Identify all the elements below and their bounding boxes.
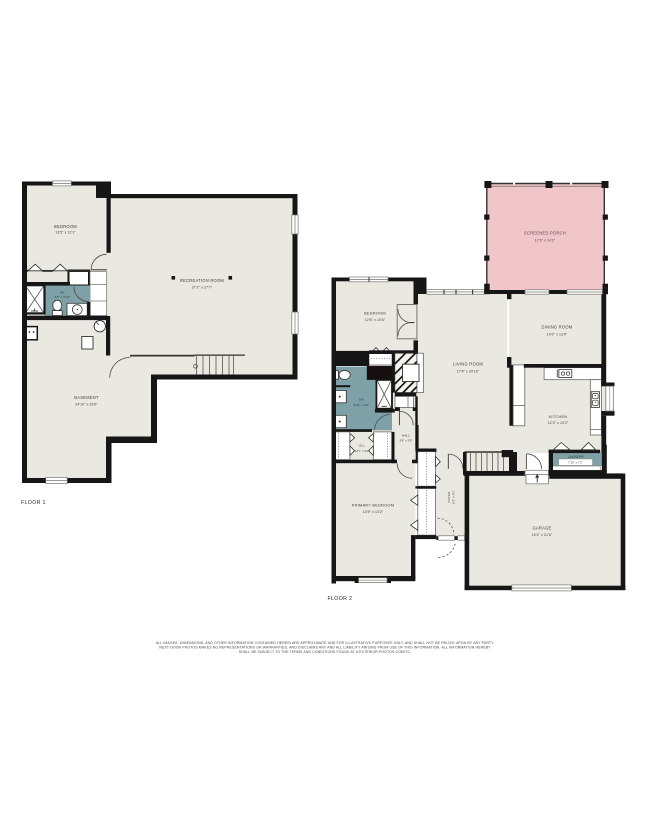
svg-text:19'4" x 21'6": 19'4" x 21'6"	[532, 533, 553, 537]
svg-text:ALL: ALL	[359, 444, 365, 448]
svg-text:SCREENED PORCH: SCREENED PORCH	[524, 231, 566, 236]
svg-text:5'11" x 9'2": 5'11" x 9'2"	[354, 403, 370, 407]
svg-text:LIVING ROOM: LIVING ROOM	[453, 362, 483, 367]
svg-text:14'7" x 4'2": 14'7" x 4'2"	[355, 449, 369, 453]
svg-text:14'2" x 13'9": 14'2" x 13'9"	[547, 333, 568, 337]
svg-text:BASEMENT: BASEMENT	[74, 395, 99, 400]
svg-text:SHALL BE SUBJECT TO THE TERMS: SHALL BE SUBJECT TO THE TERMS AND CONDIT…	[239, 650, 411, 654]
svg-text:FLOOR 2: FLOOR 2	[328, 596, 353, 602]
svg-text:HALL: HALL	[402, 434, 410, 438]
svg-text:27'2" x 27'7": 27'2" x 27'7"	[192, 286, 213, 290]
svg-text:24'10" x 23'6": 24'10" x 23'6"	[75, 403, 98, 407]
svg-text:12'6" x 10'6": 12'6" x 10'6"	[365, 318, 386, 322]
svg-text:5'6" x 3'9": 5'6" x 3'9"	[400, 439, 413, 443]
svg-text:NEXT DOOR PHOTOS MAKES NO REPR: NEXT DOOR PHOTOS MAKES NO REPRESENTATION…	[159, 646, 491, 650]
svg-text:17'6" x 14'2": 17'6" x 14'2"	[535, 239, 556, 243]
svg-text:KITCHEN: KITCHEN	[549, 414, 568, 419]
svg-text:BEDROOM: BEDROOM	[54, 224, 77, 229]
svg-text:6'3" x 9'1": 6'3" x 9'1"	[452, 490, 456, 504]
svg-text:DINING ROOM: DINING ROOM	[542, 325, 573, 330]
svg-text:12'3" x 10'2": 12'3" x 10'2"	[548, 421, 569, 425]
svg-text:RECREATION ROOM: RECREATION ROOM	[180, 278, 224, 283]
svg-text:GARAGE: GARAGE	[532, 526, 551, 531]
svg-text:7'10" x 7'2": 7'10" x 7'2"	[568, 461, 583, 465]
svg-text:BEDROOM: BEDROOM	[364, 311, 386, 316]
svg-text:17'4" x 20'10": 17'4" x 20'10"	[457, 370, 480, 374]
svg-text:LAUNDRY: LAUNDRY	[568, 455, 585, 459]
svg-text:13'9" x 13'2": 13'9" x 13'2"	[363, 510, 384, 514]
svg-text:13'5" x 12'1": 13'5" x 12'1"	[55, 231, 76, 235]
svg-text:5'6" x 4'10": 5'6" x 4'10"	[55, 295, 71, 299]
svg-text:ALL IMAGES, DIMENSIONS, AND OT: ALL IMAGES, DIMENSIONS, AND OTHER INFORM…	[156, 641, 495, 645]
svg-text:FLOOR 1: FLOOR 1	[21, 500, 46, 506]
svg-text:FOYER: FOYER	[447, 491, 451, 503]
svg-text:PRIMARY BEDROOM: PRIMARY BEDROOM	[352, 503, 395, 508]
